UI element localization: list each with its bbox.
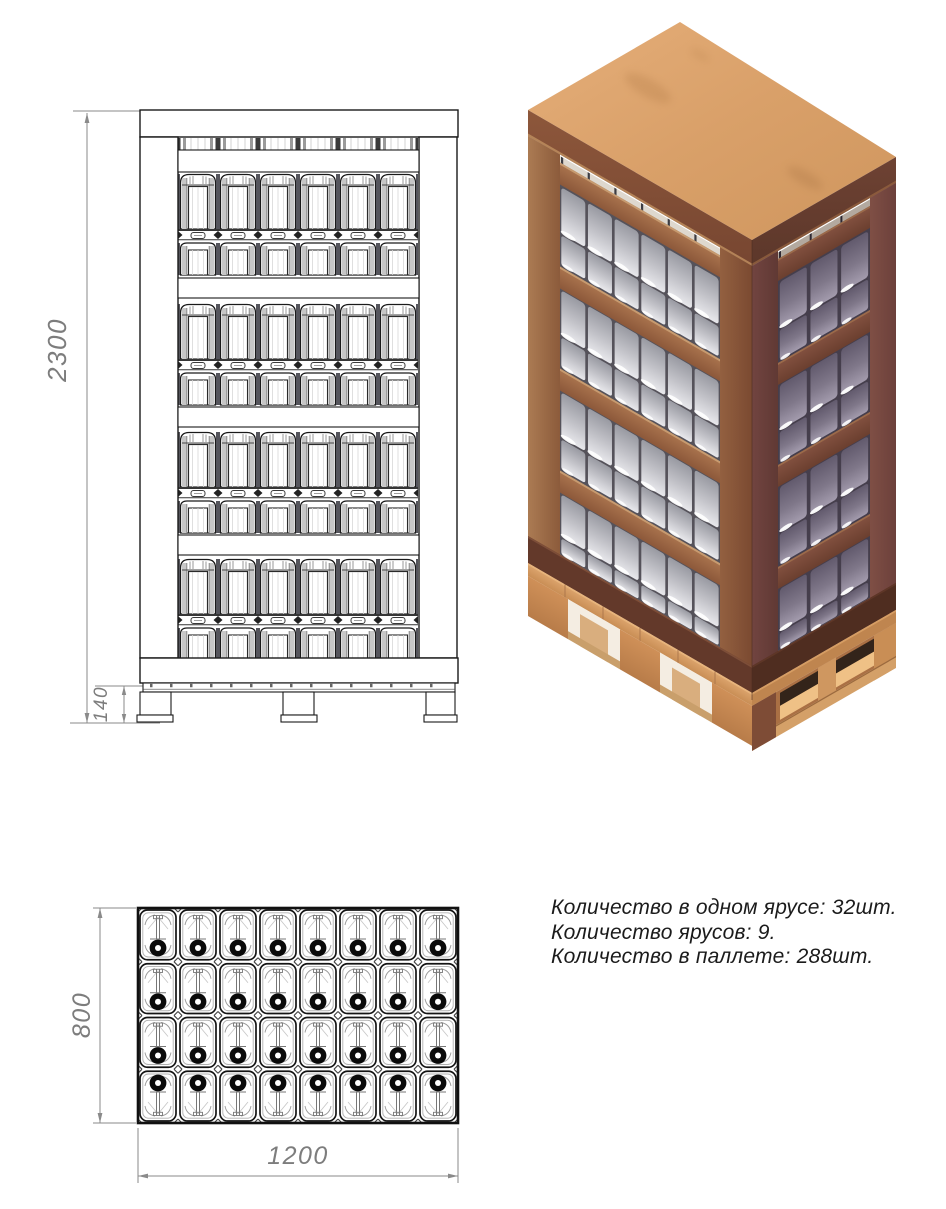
front-view: 2300 140 [42,110,458,723]
canister-front [218,559,258,614]
canister-cap [378,614,418,626]
canister-front [298,432,338,487]
canister-top [298,962,338,1016]
crate-rail [178,150,419,172]
crate-rail [178,407,419,427]
pallet-foot-base [424,715,457,722]
canister-top [178,908,218,962]
canister-cap [298,229,338,241]
canister-cap [258,614,298,626]
canister-top [258,962,298,1016]
canister-top [378,1069,418,1123]
canister-top [338,908,378,962]
canister-front-lower [218,501,258,533]
canister-front-lower [178,501,218,533]
canister-top [378,908,418,962]
corner-post [720,247,752,693]
canister-top-sliver [258,138,298,150]
canister-cap [258,487,298,499]
canister-front [258,559,298,614]
canister-top [178,962,218,1016]
arrow-down-icon [85,713,90,723]
canister-top [338,962,378,1016]
canister-front [178,174,218,229]
canister-front [218,304,258,359]
canister-top [418,962,458,1016]
canister-cap [338,229,378,241]
packing-notes: Количество в одном ярусе: 32шт. Количест… [551,896,936,970]
canister-front-lower [218,243,258,275]
canister-front-lower [178,243,218,275]
canister-cap [178,229,218,241]
canister-front [378,174,418,229]
corner-post [752,251,778,693]
canister-top [258,1069,298,1123]
drawing-canvas: 2300 140 [0,0,946,1209]
canister-front-lower [298,628,338,660]
crate-bottom-board [140,658,458,683]
canister-cap [178,614,218,626]
canister-front-lower [258,373,298,405]
canister-top [138,908,178,962]
canister-cap [218,359,258,371]
canister-cap [378,359,418,371]
canister-front [258,174,298,229]
canister-top [138,1069,178,1123]
canister-front-lower [178,628,218,660]
crate-rail [178,278,419,298]
canister-top-sliver [178,138,218,150]
canister-front-lower [338,243,378,275]
canister-cap [258,359,298,371]
note-per-tier: Количество в одном ярусе: 32шт. [551,896,936,921]
pallet-foot-base [137,715,173,722]
canister-cap [378,487,418,499]
canister-front-lower [378,501,418,533]
canister-top-sliver [338,138,378,150]
dimension-depth [93,908,136,1123]
canister-front-lower [258,243,298,275]
canister-cap [218,614,258,626]
canister-front-lower [258,501,298,533]
canister-cap [298,359,338,371]
arrow-up-icon [122,686,126,695]
pallet-foot-base [281,715,317,722]
canister-front-lower [338,628,378,660]
canister-top [258,1016,298,1070]
top-view: 800 1200 [68,908,458,1183]
canister-cap [218,487,258,499]
front-view-canisters [178,138,418,660]
arrow-up-icon [85,113,90,123]
canister-top [418,1016,458,1070]
canister-front-lower [378,243,418,275]
canister-front [258,304,298,359]
canister-top-sliver [218,138,258,150]
canister-cap [338,614,378,626]
canister-top [418,908,458,962]
crate-post-right [419,137,457,658]
crate-rail [178,535,419,555]
canister-front-lower [298,501,338,533]
canister-cap [298,487,338,499]
canister-cap [178,487,218,499]
canister-front-lower [338,373,378,405]
canister-front-lower [298,373,338,405]
canister-front-lower [218,628,258,660]
canister-top [218,908,258,962]
canister-top-sliver [298,138,338,150]
pallet-foot [426,692,455,715]
canister-front [218,432,258,487]
pallet-foot [283,692,314,715]
pallet-front-view [137,683,457,722]
canister-top [218,962,258,1016]
canister-cap [218,229,258,241]
dim-140-label: 140 [91,686,112,722]
canister-cap [258,229,298,241]
pallet-foot [140,692,171,715]
canister-front [338,304,378,359]
canister-front-lower [218,373,258,405]
canister-top [338,1016,378,1070]
canister-top [178,1069,218,1123]
crate-lid-front [140,110,458,137]
canister-front [338,559,378,614]
canister-front [258,432,298,487]
canister-cap [178,359,218,371]
canister-top [298,1016,338,1070]
canister-front [178,304,218,359]
corner-post [870,183,896,625]
canister-front [298,304,338,359]
canister-front [178,559,218,614]
canister-front-lower [378,628,418,660]
canister-cap [338,359,378,371]
canister-front [178,432,218,487]
dim-800-label: 800 [68,992,96,1038]
canister-front [378,559,418,614]
canister-front-lower [178,373,218,405]
canister-cap [378,229,418,241]
canister-cap [338,487,378,499]
canister-front [298,174,338,229]
canister-top [178,1016,218,1070]
canister-top [378,1016,418,1070]
canister-front-lower [338,501,378,533]
canister-front [338,174,378,229]
note-tiers: Количество ярусов: 9. [551,921,936,946]
canister-front [298,559,338,614]
canister-cap [298,614,338,626]
canister-top [138,1016,178,1070]
canister-top [338,1069,378,1123]
canister-top [418,1069,458,1123]
canister-top [298,908,338,962]
crate-right-face [752,183,896,693]
isometric-view [528,22,896,751]
arrow-right-icon [448,1174,458,1179]
canister-top [218,1016,258,1070]
canister-top [138,962,178,1016]
canister-top [298,1069,338,1123]
canister-top-sliver [378,138,418,150]
canister-front-lower [298,243,338,275]
canister-top [378,962,418,1016]
canister-front-lower [378,373,418,405]
canister-front-lower [258,628,298,660]
arrow-left-icon [138,1174,148,1179]
arrow-down-icon [98,1113,103,1123]
note-total: Количество в паллете: 288шт. [551,945,936,970]
canister-front [378,304,418,359]
canister-front [218,174,258,229]
arrow-up-icon [98,908,103,918]
arrow-down-icon [122,714,126,723]
canister-front [378,432,418,487]
canister-top [218,1069,258,1123]
crate-post-left [140,137,178,658]
dim-1200-label: 1200 [267,1142,329,1170]
dim-2300-label: 2300 [42,318,72,383]
canister-front [338,432,378,487]
corner-post [528,136,560,582]
canister-top [258,908,298,962]
